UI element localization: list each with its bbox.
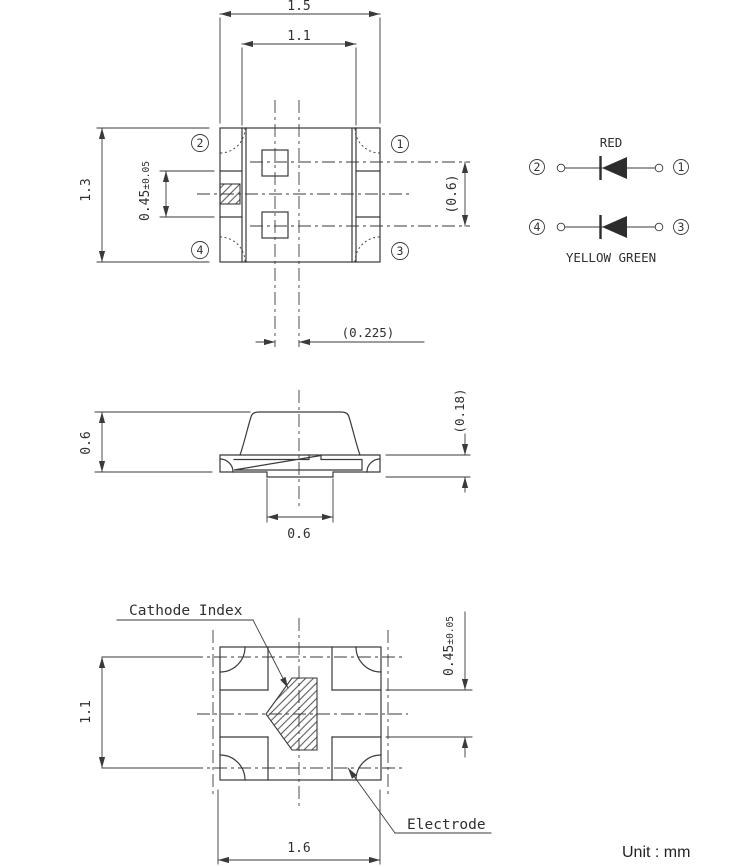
circuit-diagram: RED 2 1 4 3 YELLOW GREEN [530, 135, 689, 265]
lens-dome-outline [240, 412, 360, 455]
top-view-dimensions: 1.5 1.1 1.3 0.45±0.05 (0.6) (0.225) [79, 0, 468, 345]
svg-text:1: 1 [678, 160, 685, 174]
green-led-branch: 4 3 [530, 215, 689, 239]
base-outline [220, 455, 380, 477]
pin-4-marker: 4 [192, 242, 209, 259]
top-view-drawing: 1.5 1.1 1.3 0.45±0.05 (0.6) (0.225) 2 1 … [79, 0, 470, 347]
terminal-circle [655, 223, 663, 231]
dim-pad-row-pitch-label: 1.1 [79, 700, 94, 723]
dim-die-offset-label: (0.225) [342, 325, 395, 340]
package-dimension-drawing: 1.5 1.1 1.3 0.45±0.05 (0.6) (0.225) 2 1 … [0, 0, 741, 867]
side-view-drawing: 0.6 (0.18) 0.6 [79, 388, 470, 542]
dim-overall-height-label: 1.3 [79, 178, 94, 201]
dim-pad-gap-label: 0.45±0.05 [442, 616, 457, 676]
dim-center-pad-width-label: 0.6 [287, 527, 310, 542]
dim-overall-width-label: 1.5 [287, 0, 310, 14]
center-lines [197, 100, 470, 347]
cathode-index-callout: Cathode Index [117, 603, 291, 689]
svg-text:4: 4 [197, 243, 204, 257]
terminal-circle [655, 164, 663, 172]
diode-symbol [602, 157, 627, 179]
dim-inner-width-label: 1.1 [287, 29, 310, 44]
pin-2-marker: 2 [192, 135, 209, 152]
svg-text:3: 3 [397, 244, 404, 258]
green-led-label: YELLOW GREEN [566, 250, 656, 265]
terminal-circle [557, 223, 565, 231]
dim-overall-width-label: 1.6 [287, 841, 310, 856]
corner-notch-left [220, 459, 233, 472]
svg-text:3: 3 [678, 220, 685, 234]
datasheet-drawing-page: 1.5 1.1 1.3 0.45±0.05 (0.6) (0.225) 2 1 … [0, 0, 741, 867]
dim-height-label: 0.6 [79, 431, 94, 454]
unit-note: Unit : mm [622, 844, 690, 861]
red-led-branch: 2 1 [530, 156, 689, 180]
terminal-edge-lines [220, 128, 380, 262]
svg-text:2: 2 [197, 136, 204, 150]
dim-terminal-thickness-label: (0.18) [452, 388, 467, 433]
svg-text:4: 4 [534, 220, 541, 234]
red-led-label: RED [600, 135, 623, 150]
pin-1-marker: 1 [392, 136, 409, 153]
svg-text:2: 2 [534, 160, 541, 174]
cathode-index-label: Cathode Index [129, 603, 243, 619]
electrode-label: Electrode [407, 817, 486, 833]
terminal-circle [557, 164, 565, 172]
dim-cathode-mark-label: 0.45±0.05 [138, 161, 153, 221]
bottom-view-drawing: 1.1 0.45±0.05 1.6 Cathode Index Electrod… [79, 603, 491, 864]
diode-symbol [602, 216, 627, 238]
svg-text:1: 1 [397, 137, 404, 151]
electrode-callout: Electrode [345, 766, 491, 833]
pin-3-marker: 3 [392, 243, 409, 260]
arrowheads [99, 11, 468, 345]
corner-notch-right [367, 459, 380, 472]
dim-die-row-pitch-label: (0.6) [445, 174, 460, 213]
leadframe-outline [234, 456, 362, 471]
arrowheads [99, 412, 468, 520]
